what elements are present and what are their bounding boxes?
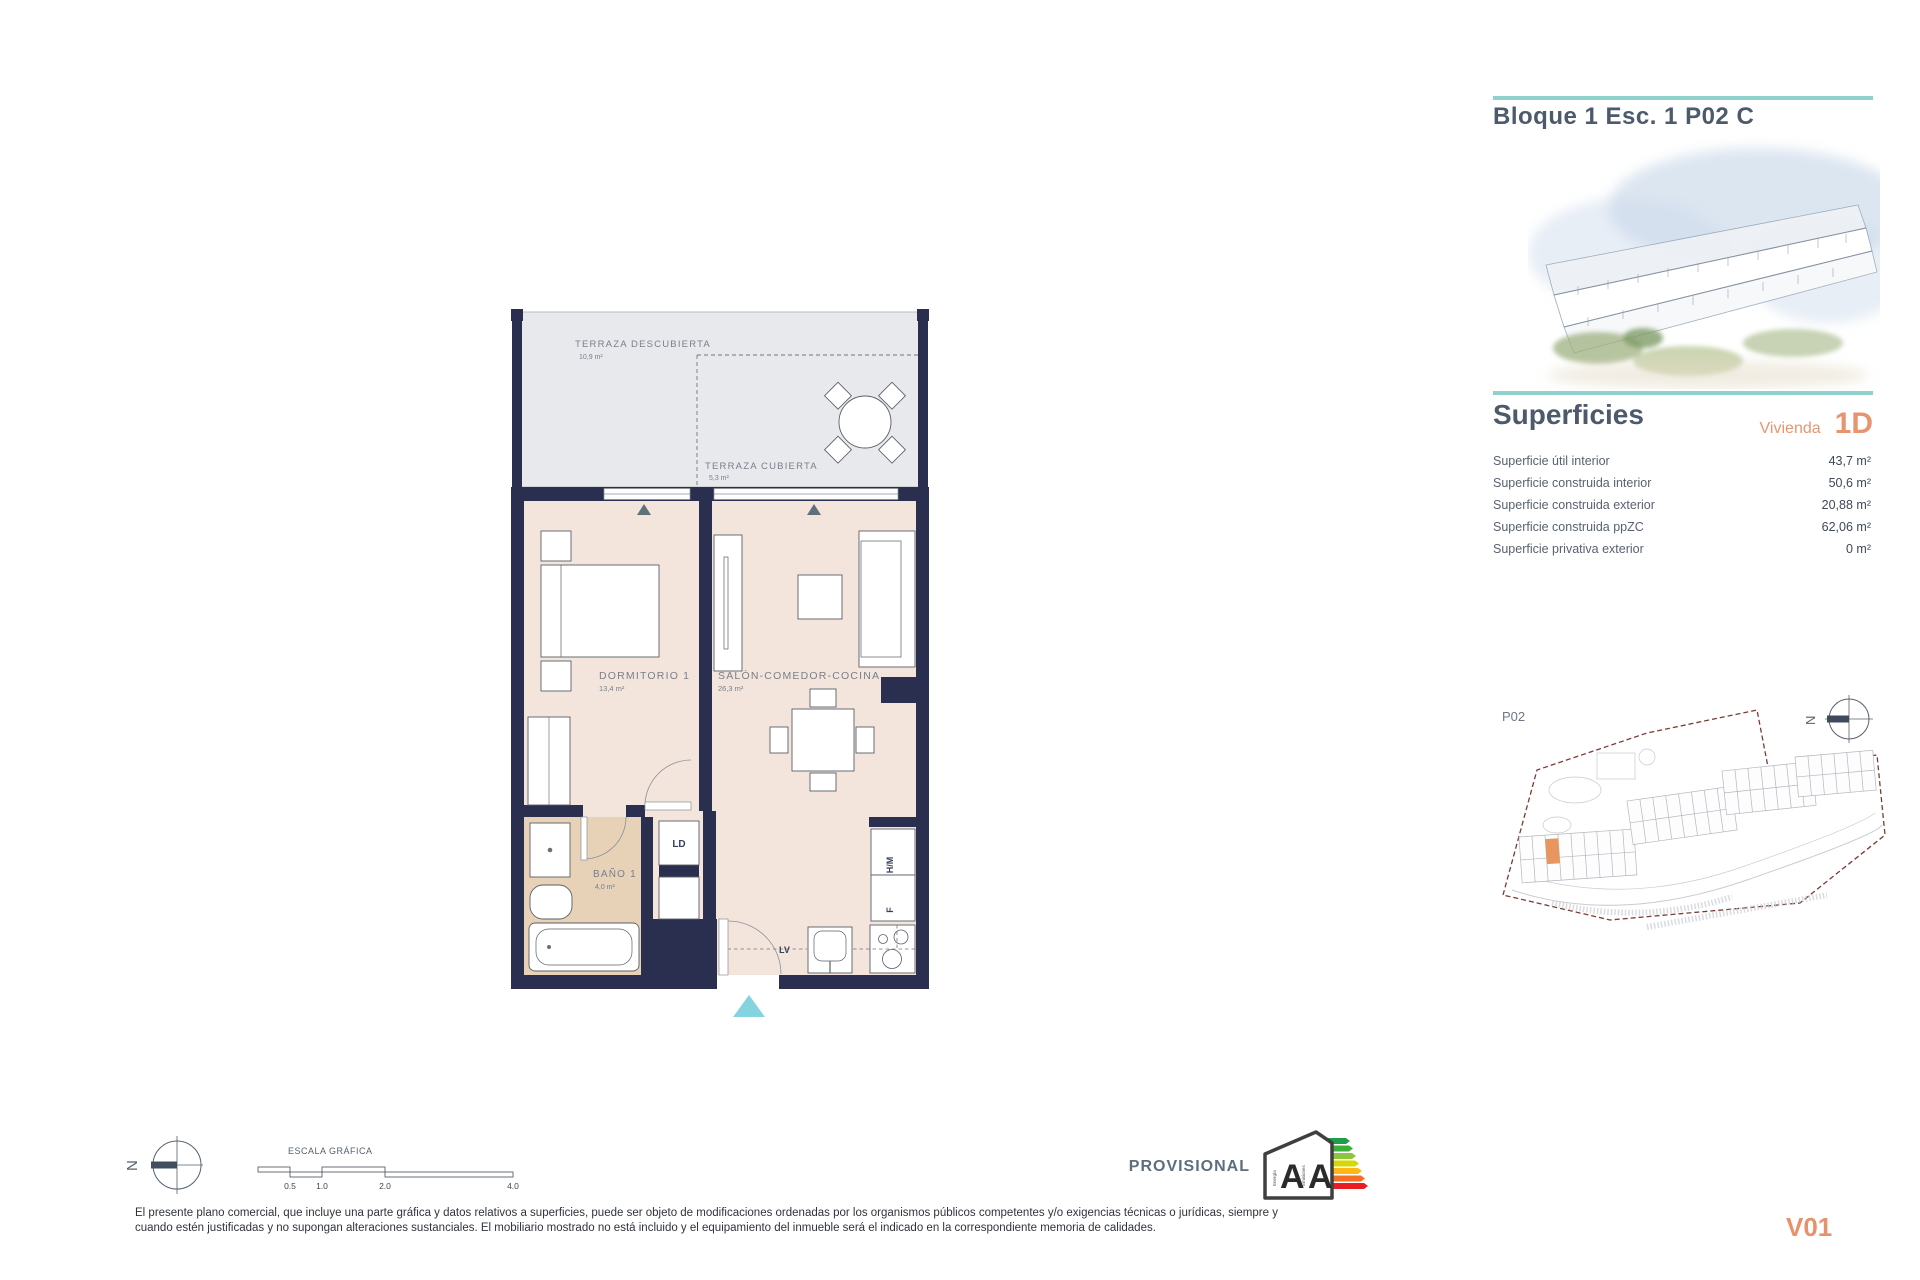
scale-tick: 4.0 [507, 1181, 519, 1191]
site-building-cluster [1519, 750, 1876, 883]
nightstand-icon [541, 661, 571, 691]
surface-value: 20,88 m² [1822, 498, 1871, 512]
surface-value: 0 m² [1846, 542, 1871, 556]
room-label: BAÑO 1 [593, 867, 637, 880]
dining-table-icon [792, 709, 854, 771]
vivienda-tag: Vivienda1D [1760, 407, 1873, 441]
building-rendering [1528, 133, 1880, 389]
scale-tick: 0.5 [284, 1181, 296, 1191]
window-icon [604, 489, 898, 500]
superficies-accent-rule [1493, 391, 1873, 395]
lv-label: LV [779, 945, 790, 955]
room-area: 4,0 m² [595, 884, 616, 891]
fridge-icon [871, 875, 915, 921]
table-row: Superficie útil interior 43,7 m² [1493, 450, 1871, 472]
shower-drain-icon [548, 848, 553, 853]
bath-door-leaf [581, 817, 587, 860]
floor-plan: TERRAZA DESCUBIERTA 10,9 m² TERRAZA CUBI… [511, 309, 929, 1021]
surface-label: Superficie privativa exterior [1493, 542, 1644, 556]
surface-value: 50,6 m² [1829, 476, 1871, 490]
bathtub-faucet-icon [547, 945, 551, 949]
sand-wash [1548, 361, 1868, 389]
bathtub-icon [529, 923, 639, 971]
room-label: TERRAZA DESCUBIERTA [575, 339, 711, 350]
surface-value: 62,06 m² [1822, 520, 1871, 534]
version-label: V01 [1786, 1212, 1832, 1243]
room-label: TERRAZA CUBIERTA [705, 461, 818, 472]
scale-segments [258, 1167, 513, 1177]
site-compass-icon: N [1803, 695, 1873, 743]
surface-label: Superficie construida ppZC [1493, 520, 1644, 534]
chair-icon [810, 689, 836, 707]
table-row: Superficie construida interior 50,6 m² [1493, 472, 1871, 494]
disclaimer-line: cuando estén justificadas y no supongan … [135, 1221, 1435, 1236]
provisional-label: PROVISIONAL [1050, 1158, 1250, 1176]
compass-icon: N [115, 1128, 215, 1204]
site-north-letter: N [1803, 716, 1818, 725]
energy-axis-label: Energía [1272, 1170, 1277, 1186]
room-area: 26,3 m² [718, 684, 744, 693]
entrance-arrow-icon [733, 995, 765, 1017]
sofa-icon [859, 531, 915, 667]
disclaimer-text: El presente plano comercial, que incluye… [135, 1206, 1435, 1236]
superficies-table: Superficie útil interior 43,7 m² Superfi… [1493, 450, 1871, 560]
table-row: Superficie construida exterior 20,88 m² [1493, 494, 1871, 516]
highlighted-unit [1545, 838, 1560, 864]
room-terraza: TERRAZA DESCUBIERTA 10,9 m² TERRAZA CUBI… [511, 309, 929, 487]
room-area: 10,9 m² [579, 354, 603, 361]
scale-title: ESCALA GRÁFICA [288, 1146, 373, 1156]
title-accent-rule [1493, 96, 1873, 100]
nightstand-icon [541, 531, 571, 561]
energy-letter: A [1308, 1158, 1333, 1196]
surface-label: Superficie construida interior [1493, 476, 1651, 490]
coffee-table-icon [798, 575, 842, 619]
page-title: Bloque 1 Esc. 1 P02 C [1493, 103, 1754, 131]
surface-label: Superficie construida exterior [1493, 498, 1655, 512]
washbasin-icon [530, 885, 572, 919]
vivienda-code: 1D [1835, 407, 1873, 440]
scale-tick: 2.0 [379, 1181, 391, 1191]
energy-axis-label: Emisiones [1301, 1164, 1306, 1186]
ld-label: LD [672, 839, 685, 850]
surface-value: 43,7 m² [1829, 454, 1871, 468]
table-row: Superficie construida ppZC 62,06 m² [1493, 516, 1871, 538]
table-row: Superficie privativa exterior 0 m² [1493, 538, 1871, 560]
room-label: SALÓN-COMEDOR-COCINA [718, 669, 880, 682]
room-label: DORMITORIO 1 [599, 670, 690, 682]
vivienda-label: Vivienda [1760, 420, 1821, 437]
disclaimer-line: El presente plano comercial, que incluye… [135, 1206, 1435, 1221]
f-label: F [885, 907, 895, 913]
site-plan: P02 N [1497, 695, 1889, 947]
chair-icon [810, 773, 836, 791]
hm-label: H/M [885, 857, 895, 874]
bed-icon [541, 565, 659, 657]
room-bano: BAÑO 1 4,0 m² [524, 817, 641, 975]
surface-label: Superficie útil interior [1493, 454, 1610, 468]
floor-level-label: P02 [1502, 709, 1525, 724]
superficies-title: Superficies [1493, 399, 1644, 431]
scale-bar: ESCALA GRÁFICA 0.5 1.0 2.0 4.0 [255, 1142, 525, 1194]
room-area: 5,3 m² [709, 475, 730, 482]
north-letter: N [124, 1160, 141, 1171]
chair-icon [770, 727, 788, 753]
energy-certificate-icon: A A Energía Emisiones [1258, 1124, 1376, 1206]
chair-icon [856, 727, 874, 753]
superficies-header: Superficies Vivienda1D [1493, 399, 1873, 431]
room-area: 13,4 m² [599, 684, 625, 693]
scale-tick: 1.0 [316, 1181, 328, 1191]
